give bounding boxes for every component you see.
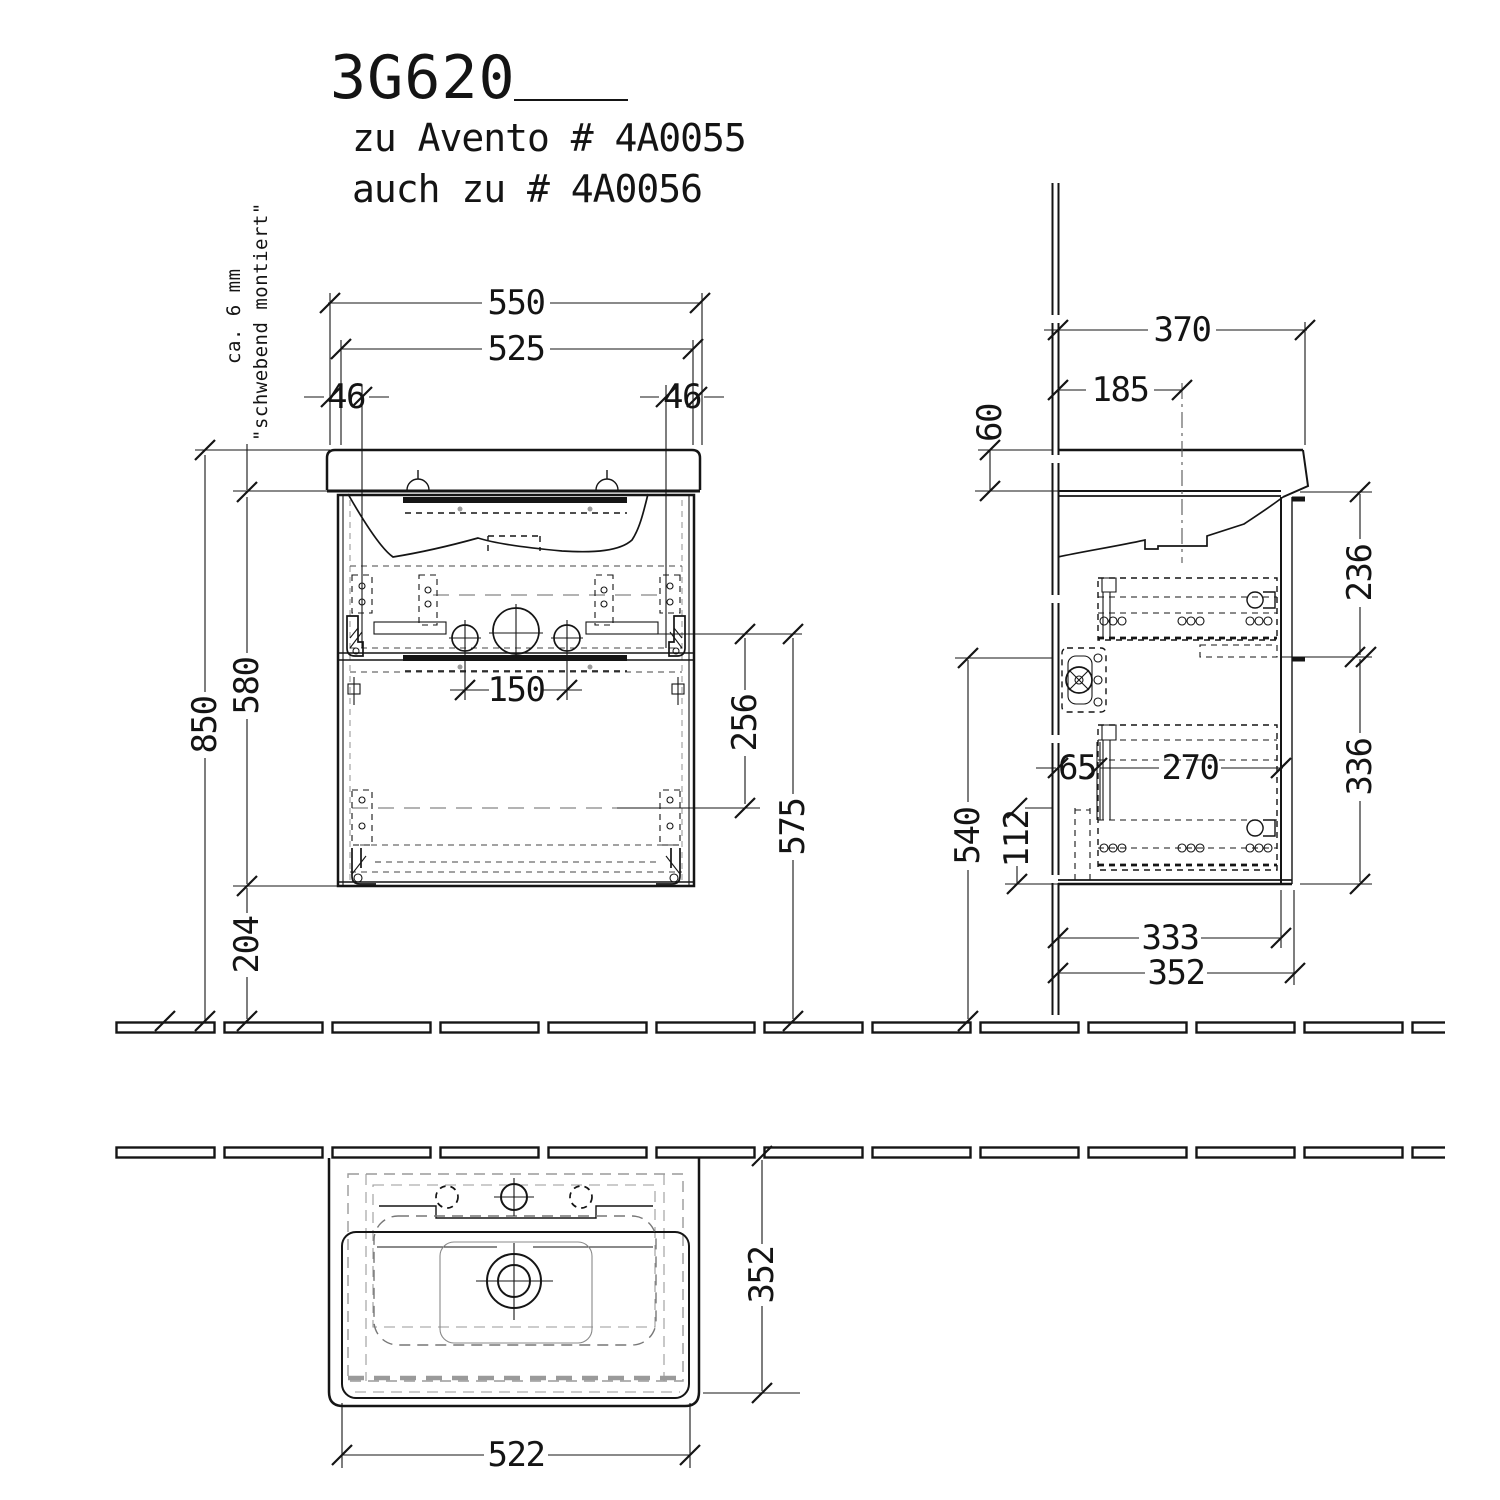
- basin-apron-curve: [348, 494, 648, 557]
- note-line-2: "schwebend montiert": [250, 202, 272, 441]
- drawer-slide-lower-right: [656, 790, 680, 884]
- dim-depth-basin: 370: [1154, 310, 1211, 350]
- dim-front-clearance: 540: [948, 808, 988, 865]
- dim-lower-front-height: 336: [1340, 739, 1380, 796]
- floor-line: [115, 1021, 1445, 1034]
- dimensions-plan: 522 352: [332, 1146, 800, 1475]
- bowl-bottom-plan: [440, 1242, 592, 1343]
- plan-wall-band: [115, 1146, 1445, 1159]
- drawer-slide-lower-left: [352, 790, 376, 884]
- basin-side-underside: [1058, 497, 1283, 557]
- dim-offset-left: 46: [327, 377, 365, 417]
- tap-hole-left: [436, 1186, 458, 1208]
- wall-side: [1053, 183, 1059, 1021]
- cabinet-side: [1058, 496, 1305, 884]
- dim-offset-right: 46: [663, 377, 701, 417]
- title-block: 3G620 zu Avento # 4A0055 auch zu # 4A005…: [330, 43, 746, 211]
- mounting-rail-bottom: [403, 655, 627, 661]
- dim-cabinet-depth: 333: [1142, 918, 1199, 958]
- tap-holes-front: [449, 604, 583, 658]
- drawing-code: 3G620: [330, 43, 516, 113]
- floor-band: [115, 1021, 1445, 1034]
- tap-holes-plan: [436, 1178, 592, 1216]
- wall-bracket: [1062, 648, 1106, 712]
- dim-width-fixing: 525: [488, 329, 545, 369]
- dim-cutout-height: 256: [725, 695, 765, 752]
- basin-front-outline: [327, 450, 700, 490]
- washbasin-side: [1058, 383, 1308, 563]
- dim-siphon-clearance: 575: [773, 799, 813, 856]
- drain-plan: [476, 1243, 553, 1320]
- plan-view: 522 352: [329, 1146, 800, 1475]
- dim-plan-width: 522: [488, 1435, 545, 1475]
- dim-total-depth: 352: [1148, 953, 1205, 993]
- bowl-rim-plan: [342, 1232, 689, 1398]
- dim-height-rim: 850: [185, 697, 225, 754]
- dim-depth-center: 185: [1092, 370, 1149, 410]
- washbasin-front: [327, 450, 700, 557]
- fixing-screw-right: [596, 470, 618, 490]
- vanity-unit-technical-drawing: 3G620 zu Avento # 4A0055 auch zu # 4A005…: [0, 0, 1500, 1500]
- note-line-1: ca. 6 mm: [223, 268, 245, 364]
- technical-drawing-page: 3G620 zu Avento # 4A0055 auch zu # 4A005…: [0, 0, 1500, 1500]
- dimensions-side: 370 185 60 236 336 540 112 65: [948, 310, 1380, 1031]
- dim-height-below: 204: [227, 917, 267, 974]
- dim-bottom-edge-height: 112: [997, 811, 1037, 868]
- dim-inner-depth: 270: [1162, 748, 1219, 788]
- cabinet-plan-hidden: [348, 1174, 683, 1381]
- dim-tap-distance: 150: [488, 670, 545, 710]
- dim-plan-depth: 352: [742, 1247, 782, 1304]
- dim-upper-front-height: 236: [1340, 545, 1380, 602]
- drawer-upper-hidden: [1098, 578, 1277, 657]
- dim-height-cabinet: 580: [227, 658, 267, 715]
- wall-line-plan: [115, 1146, 1445, 1159]
- subtitle-line-1: zu Avento # 4A0055: [352, 116, 746, 160]
- dim-basin-edge-height: 60: [970, 404, 1010, 442]
- mounting-note: ca. 6 mm "schwebend montiert": [223, 202, 272, 490]
- side-view: 370 185 60 236 336 540 112 65: [948, 183, 1380, 1031]
- mounting-rail-top: [403, 497, 627, 503]
- fixing-screw-left: [407, 470, 429, 490]
- dim-width-outer: 550: [488, 283, 545, 323]
- dim-wall-offset: 65: [1058, 748, 1096, 788]
- subtitle-line-2: auch zu # 4A0056: [352, 167, 702, 211]
- tap-hole-right: [570, 1186, 592, 1208]
